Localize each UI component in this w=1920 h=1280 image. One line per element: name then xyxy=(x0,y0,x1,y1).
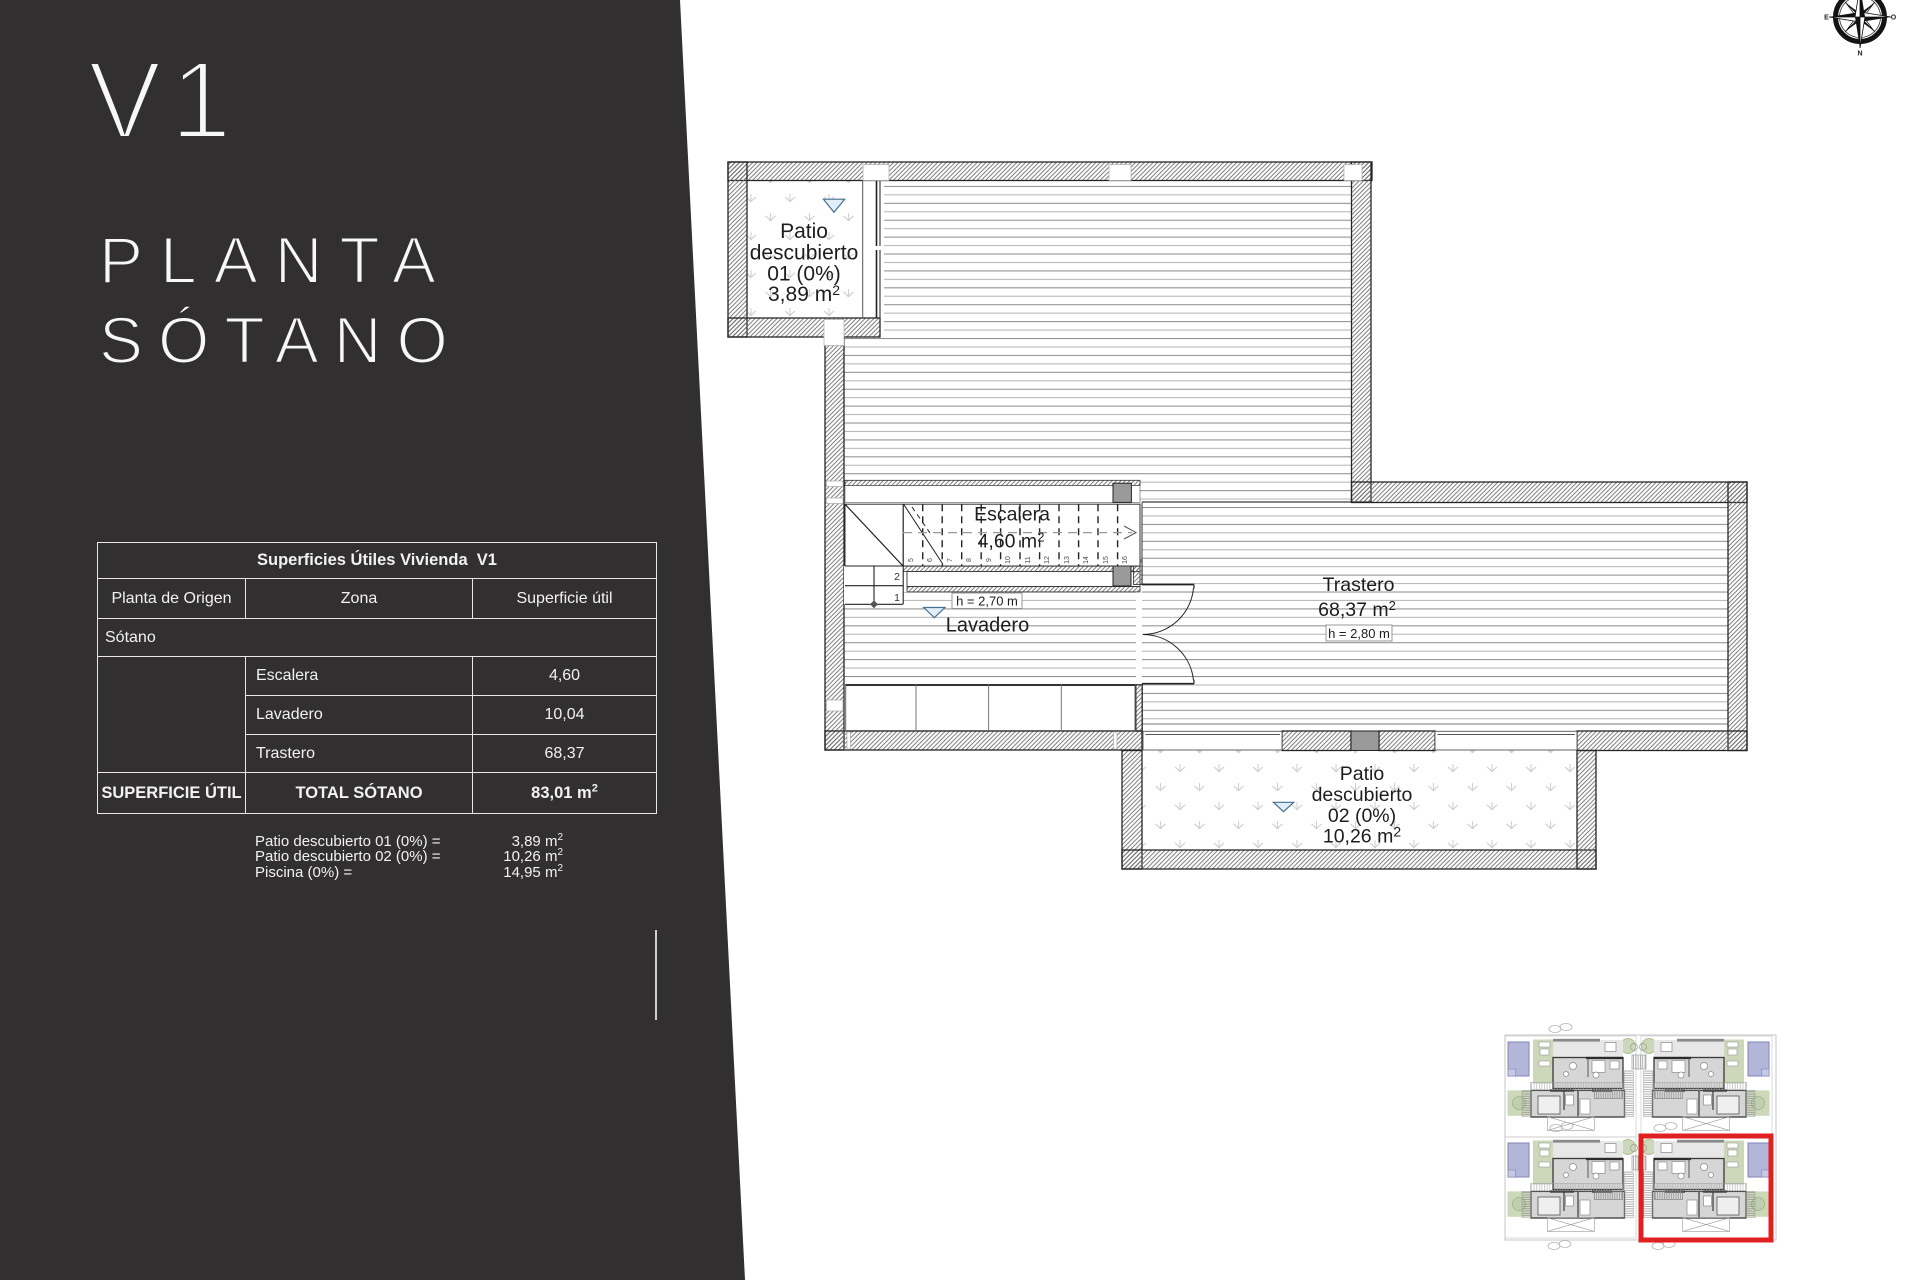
svg-text:2: 2 xyxy=(894,571,900,583)
svg-text:10: 10 xyxy=(1005,556,1012,564)
svg-text:Patio: Patio xyxy=(1340,763,1385,785)
svg-text:13: 13 xyxy=(1064,556,1071,564)
svg-text:4,60 m2: 4,60 m2 xyxy=(978,530,1045,553)
svg-text:descubierto: descubierto xyxy=(750,242,859,265)
svg-text:6: 6 xyxy=(927,558,934,562)
svg-text:Escalera: Escalera xyxy=(974,504,1050,526)
svg-text:16: 16 xyxy=(1122,556,1129,564)
svg-text:11: 11 xyxy=(1025,556,1032,563)
svg-text:7: 7 xyxy=(947,558,954,562)
svg-text:h = 2,70 m: h = 2,70 m xyxy=(956,593,1018,608)
svg-text:Trastero: Trastero xyxy=(1323,574,1395,596)
svg-text:3,89 m2: 3,89 m2 xyxy=(768,282,840,306)
svg-text:E: E xyxy=(1824,15,1829,22)
svg-text:5: 5 xyxy=(908,558,915,562)
svg-text:N: N xyxy=(1857,51,1862,58)
svg-text:15: 15 xyxy=(1103,556,1110,564)
svg-text:h = 2,80 m: h = 2,80 m xyxy=(1328,626,1390,641)
svg-text:8: 8 xyxy=(966,558,973,562)
svg-text:68,37 m2: 68,37 m2 xyxy=(1318,598,1396,621)
svg-text:Lavadero: Lavadero xyxy=(946,615,1029,637)
svg-text:12: 12 xyxy=(1044,556,1051,564)
svg-text:10,26 m2: 10,26 m2 xyxy=(1323,824,1401,848)
svg-text:02 (0%): 02 (0%) xyxy=(1328,805,1396,827)
svg-text:14: 14 xyxy=(1083,556,1090,564)
svg-text:Patio: Patio xyxy=(780,220,828,243)
svg-text:9: 9 xyxy=(986,558,993,562)
svg-text:O: O xyxy=(1891,15,1897,22)
svg-text:descubierto: descubierto xyxy=(1312,784,1413,806)
svg-text:1: 1 xyxy=(894,592,900,604)
